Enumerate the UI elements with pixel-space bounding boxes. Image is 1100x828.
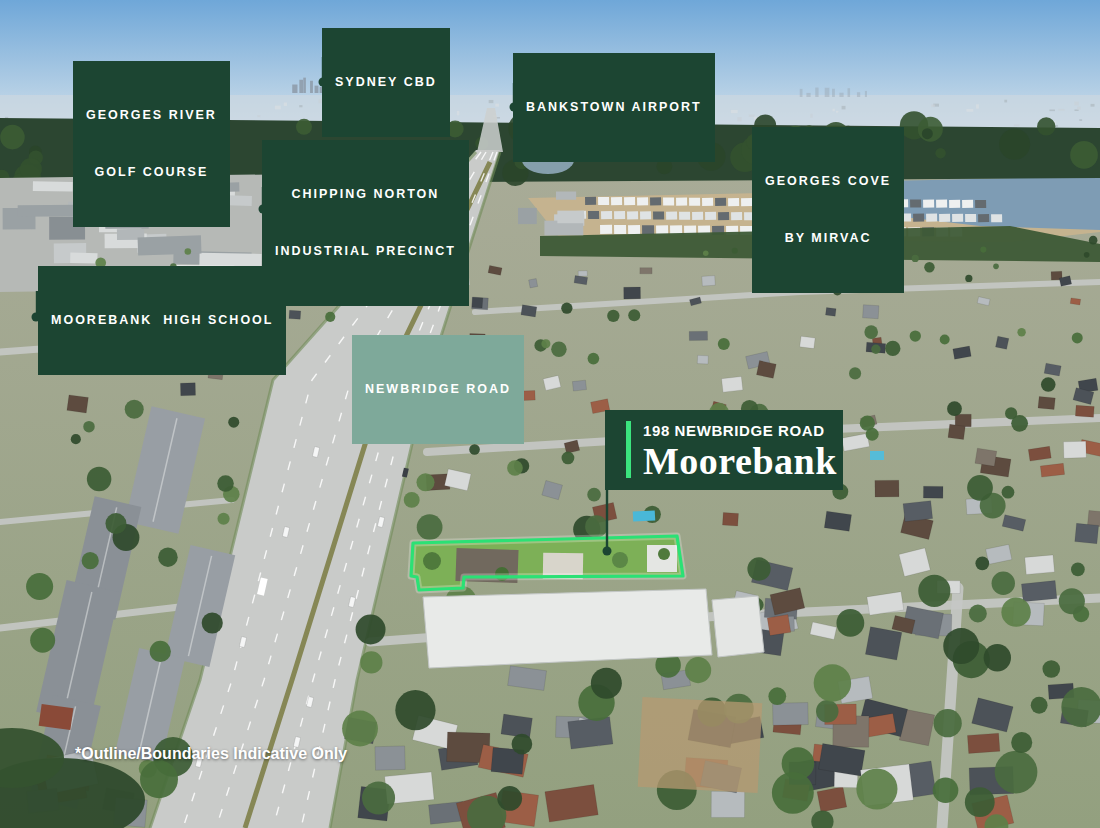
callout-label: BANKSTOWN AIRPORT	[526, 98, 702, 117]
callout-georges-river-golf-course: GEORGES RIVER GOLF COURSE	[73, 61, 230, 227]
callout-label: BY MIRVAC	[765, 229, 891, 248]
accent-bar	[626, 421, 631, 478]
callout-sydney-cbd: SYDNEY CBD	[322, 28, 450, 137]
pool	[633, 510, 655, 521]
dirt-yard	[638, 697, 763, 793]
callout-label: INDUSTRIAL PRECINCT	[275, 242, 456, 261]
pool-small	[870, 451, 884, 460]
callout-label: GEORGES COVE	[765, 172, 891, 191]
callout-bankstown-airport: BANKSTOWN AIRPORT	[513, 53, 715, 162]
callout-label: GEORGES RIVER	[86, 106, 217, 125]
property-callout: 198 NEWBRIDGE ROAD Moorebank	[605, 410, 843, 490]
callout-moorebank-high-school: MOOREBANK HIGH SCHOOL	[38, 266, 286, 375]
aerial-photo-stage: SYDNEY CBD GEORGES RIVER GOLF COURSE BAN…	[0, 0, 1100, 828]
property-suburb: Moorebank	[643, 439, 837, 483]
callout-label: MOOREBANK HIGH SCHOOL	[51, 311, 273, 330]
property-address: 198 NEWBRIDGE ROAD	[643, 422, 837, 439]
callout-chipping-norton: CHIPPING NORTON INDUSTRIAL PRECINCT	[262, 140, 469, 306]
callout-label: GOLF COURSE	[86, 163, 217, 182]
callout-label: NEWBRIDGE ROAD	[365, 380, 511, 399]
callout-georges-cove: GEORGES COVE BY MIRVAC	[752, 127, 904, 293]
callout-newbridge-road: NEWBRIDGE ROAD	[352, 335, 524, 444]
disclaimer-text: *Outline/Boundaries Indicative Only	[75, 745, 347, 763]
callout-label: SYDNEY CBD	[335, 73, 437, 92]
callout-label: CHIPPING NORTON	[275, 185, 456, 204]
